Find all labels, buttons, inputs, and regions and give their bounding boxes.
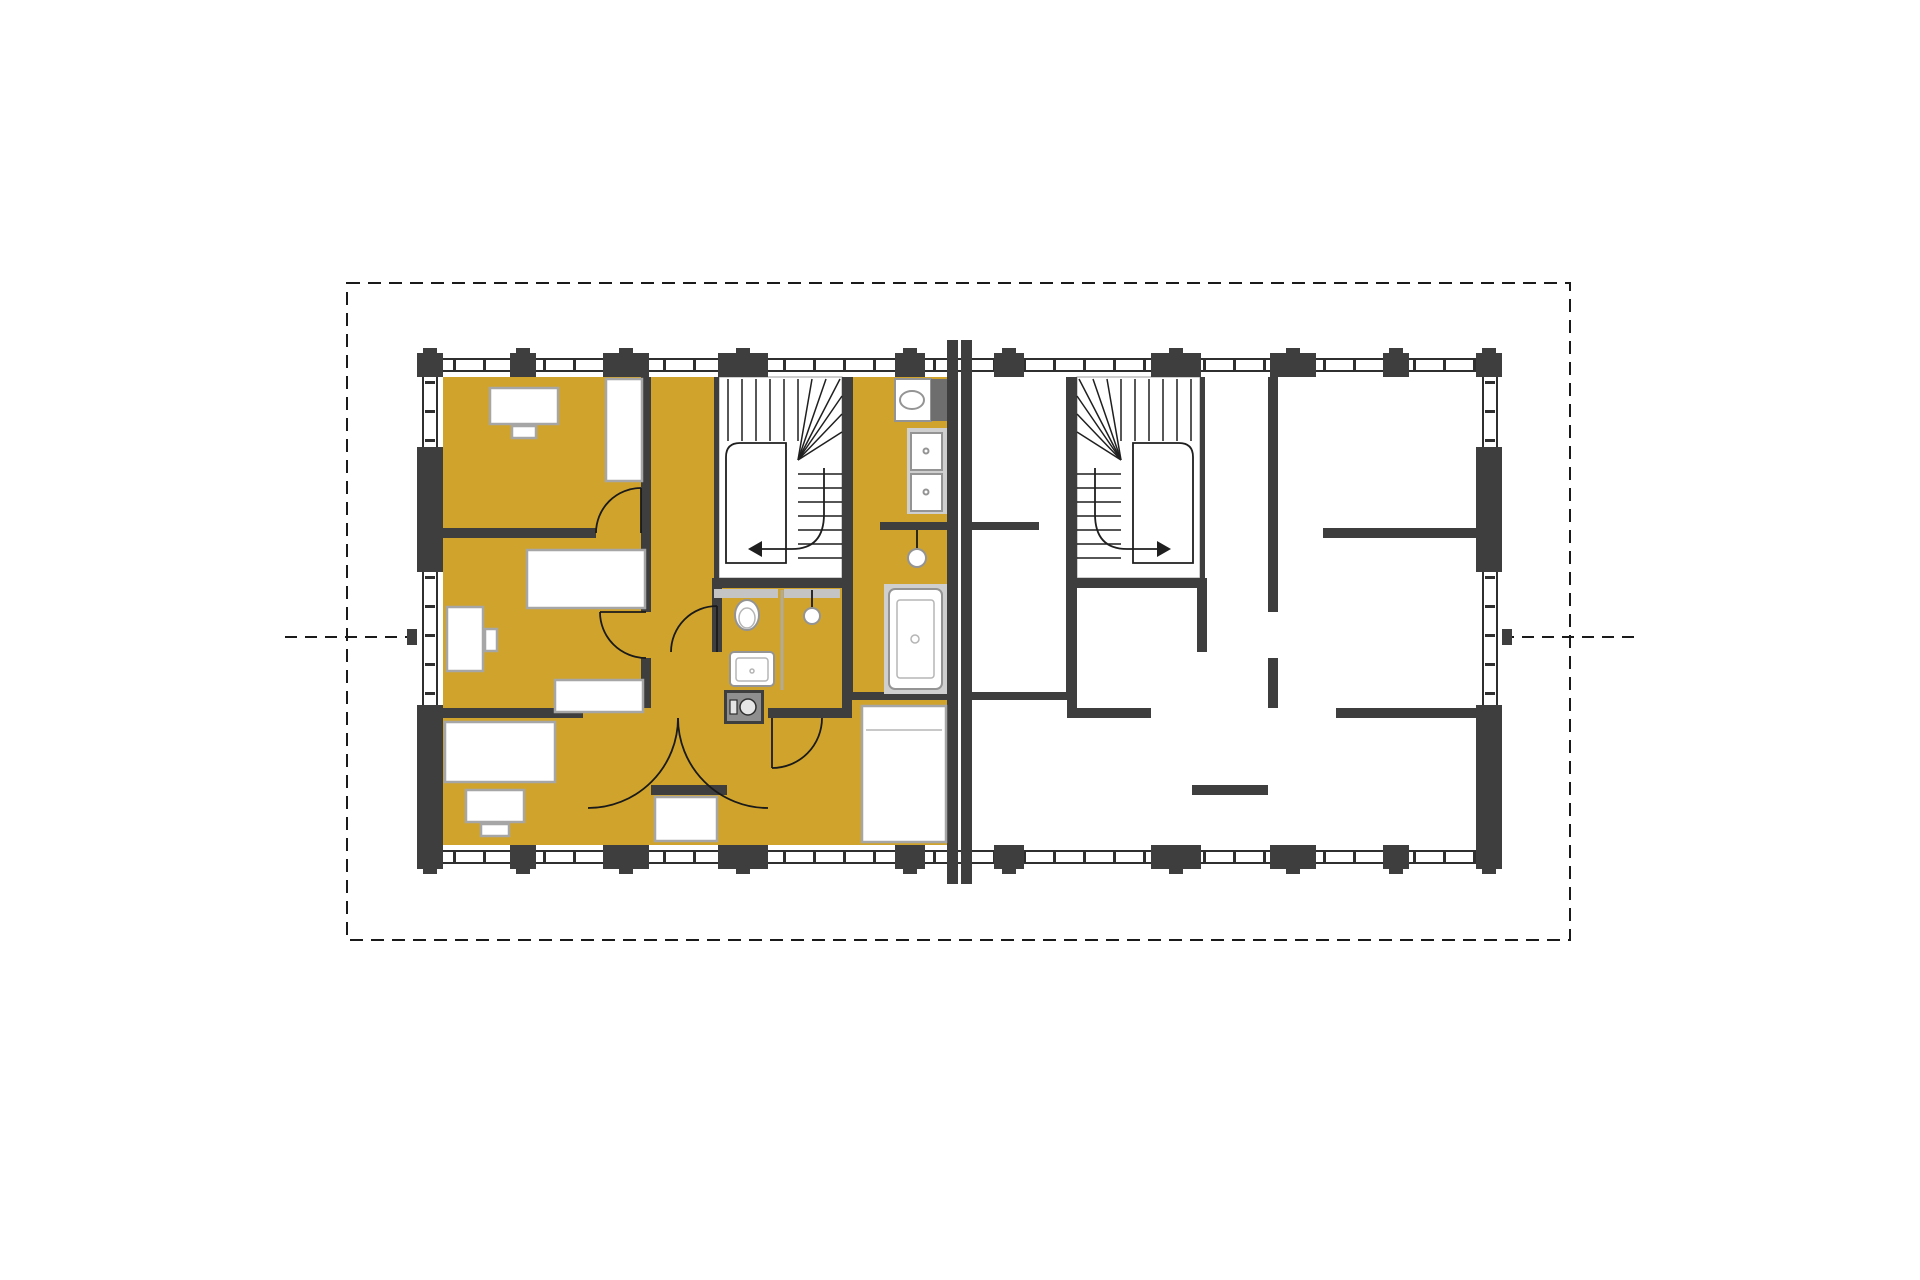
bed (555, 680, 643, 712)
exterior-wall-right (1476, 705, 1502, 869)
pillar (1383, 353, 1409, 377)
pillar (895, 353, 925, 377)
interior-wall (1066, 377, 1077, 692)
exterior-wall-right (1476, 447, 1502, 572)
exterior-wall-left (417, 447, 443, 572)
interior-wall (651, 785, 727, 795)
interior-wall (972, 692, 1077, 700)
desk (466, 790, 524, 822)
interior-wall (1336, 708, 1476, 718)
pillar (510, 845, 536, 869)
interior-wall (443, 528, 596, 538)
pillar (603, 353, 649, 377)
interior-wall (1268, 658, 1278, 708)
washing-machine (724, 690, 764, 724)
vanity-sink (900, 391, 924, 409)
bathroom-wall (712, 578, 845, 588)
section-marker-right (1502, 629, 1512, 645)
pillar (1383, 845, 1409, 869)
pillar (718, 845, 768, 869)
interior-wall (842, 377, 853, 692)
interior-wall (1067, 692, 1077, 718)
desk (447, 607, 483, 671)
party-wall (947, 340, 958, 884)
pillar (1476, 353, 1502, 377)
interior-wall (1192, 785, 1268, 795)
toilet (735, 600, 759, 630)
exterior-wall-left (417, 705, 443, 869)
interior-wall (1323, 528, 1476, 538)
wardrobe (527, 550, 645, 608)
pillar (994, 845, 1024, 869)
bathtub (884, 584, 947, 694)
pillar (510, 353, 536, 377)
interior-wall (880, 522, 947, 530)
interior-wall (1268, 377, 1278, 538)
chair (485, 629, 497, 651)
bathroom-wall (1074, 578, 1207, 588)
interior-wall (842, 692, 852, 718)
double-bed (862, 706, 946, 842)
floorplan-canvas (0, 0, 1920, 1280)
bathroom-shelf (714, 589, 778, 598)
pillar (417, 353, 443, 377)
pillar (1151, 353, 1201, 377)
pillar (895, 845, 925, 869)
bed (445, 722, 555, 782)
chair (481, 824, 509, 836)
interior-wall (768, 708, 842, 718)
pillar (603, 845, 649, 869)
chair (512, 426, 536, 438)
window-band-bottom (417, 849, 1501, 865)
washer-dryer-stack (907, 428, 947, 514)
interior-wall (972, 522, 1039, 530)
bathroom-cabinet (931, 379, 947, 421)
section-marker-left (407, 629, 417, 645)
bathroom-wall (1197, 588, 1207, 652)
window-band-top (417, 357, 1501, 373)
pillar (994, 353, 1024, 377)
pillar (1270, 353, 1316, 377)
washbasin (730, 652, 774, 686)
stair-wall (1200, 377, 1205, 578)
wardrobe (655, 797, 717, 841)
pillar (1270, 845, 1316, 869)
floorplan-drawing (0, 0, 1920, 1280)
desk (490, 388, 558, 424)
bed (606, 379, 642, 481)
pillar (718, 353, 768, 377)
stair-wall (714, 377, 719, 578)
interior-wall (1268, 538, 1278, 612)
interior-wall (1077, 708, 1151, 718)
pillar (1151, 845, 1201, 869)
unit-right-floor (972, 377, 1476, 845)
party-wall (961, 340, 972, 884)
